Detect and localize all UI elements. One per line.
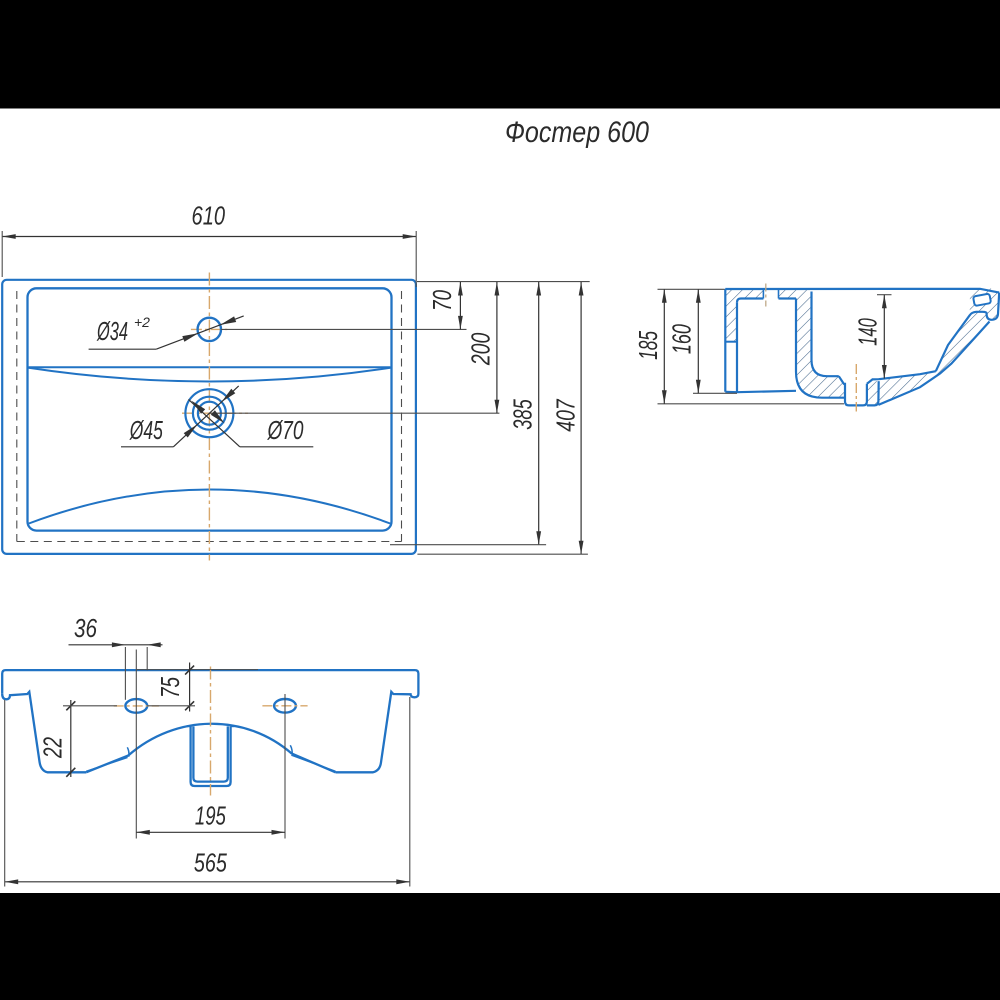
svg-text:Фостер 600: Фостер 600 xyxy=(505,116,649,149)
svg-text:36: 36 xyxy=(74,613,97,643)
svg-text:140: 140 xyxy=(852,318,882,346)
svg-text:Ø34: Ø34 xyxy=(96,316,128,346)
svg-text:Ø45: Ø45 xyxy=(129,415,163,445)
svg-text:Ø70: Ø70 xyxy=(267,415,304,445)
svg-text:610: 610 xyxy=(192,200,226,230)
svg-text:185: 185 xyxy=(633,331,663,360)
svg-text:385: 385 xyxy=(507,399,537,430)
svg-text:200: 200 xyxy=(466,332,496,366)
svg-text:565: 565 xyxy=(194,847,227,877)
svg-text:75: 75 xyxy=(155,677,185,698)
svg-text:70: 70 xyxy=(427,290,457,311)
svg-text:22: 22 xyxy=(37,737,67,759)
svg-text:+2: +2 xyxy=(134,314,150,330)
svg-text:160: 160 xyxy=(666,324,696,354)
svg-text:195: 195 xyxy=(195,800,226,830)
svg-text:407: 407 xyxy=(550,398,580,432)
